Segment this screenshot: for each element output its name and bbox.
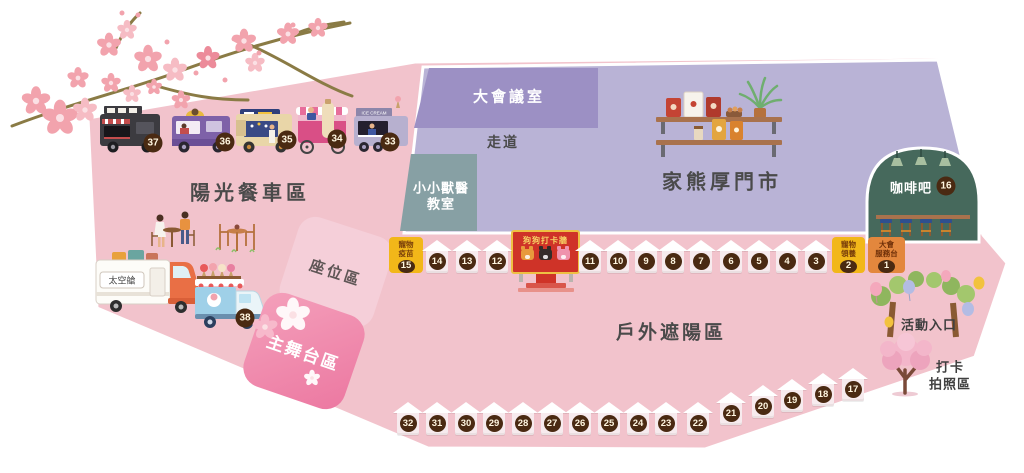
food-truck-33-number: 33 <box>381 133 400 152</box>
tent-23: 23 <box>651 402 681 435</box>
tent-roof-icon <box>683 402 713 413</box>
tent-body: 6 <box>720 250 742 273</box>
meeting-room-label: 大會議室 <box>473 86 545 107</box>
booth-label: 寵物 <box>399 240 414 249</box>
tent-3: 3 <box>801 240 831 273</box>
dog-face-icon <box>557 249 570 260</box>
tent-number: 8 <box>665 253 682 270</box>
photo-zone-label-line2: 拍照區 <box>929 374 971 393</box>
tent-number: 27 <box>544 415 561 432</box>
tent-roof-icon <box>716 240 746 251</box>
tent-31: 31 <box>422 402 452 435</box>
tent-26: 26 <box>565 402 595 435</box>
tent-roof-icon <box>744 240 774 251</box>
walkway-label: 走道 <box>487 132 519 152</box>
tent-roof-icon <box>716 392 746 403</box>
tent-number: 31 <box>429 415 446 432</box>
tent-roof-icon <box>422 240 452 251</box>
tent-29: 29 <box>479 402 509 435</box>
tent-body: 25 <box>598 412 620 435</box>
tent-roof-icon <box>838 368 868 379</box>
seating-area-label: 座位區 <box>307 254 365 291</box>
tent-number: 20 <box>755 398 772 415</box>
tent-body: 26 <box>569 412 591 435</box>
tent-13: 13 <box>452 240 482 273</box>
tent-roof-icon <box>603 240 633 251</box>
tent-number: 26 <box>572 415 589 432</box>
tent-number: 11 <box>582 253 599 270</box>
tent-number: 6 <box>723 253 740 270</box>
tent-roof-icon <box>777 379 807 390</box>
tent-body: 32 <box>397 412 419 435</box>
tent-body: 24 <box>627 412 649 435</box>
tent-number: 7 <box>693 253 710 270</box>
tent-11: 11 <box>575 240 605 273</box>
tent-4: 4 <box>772 240 802 273</box>
space-capsule-label: 太空艙 <box>108 274 135 287</box>
tent-22: 22 <box>683 402 713 435</box>
tent-27: 27 <box>537 402 567 435</box>
tent-roof-icon <box>658 240 688 251</box>
tent-21: 21 <box>716 392 746 425</box>
tent-number: 9 <box>638 253 655 270</box>
food-truck-zone-label: 陽光餐車區 <box>190 177 310 206</box>
tent-body: 7 <box>690 250 712 273</box>
tent-roof-icon <box>537 402 567 413</box>
outdoor-shade-label: 戶外遮陽區 <box>616 318 726 345</box>
booth-label: 服務台 <box>875 249 898 258</box>
main-stage-label: 主舞台區 <box>264 327 344 375</box>
tent-20: 20 <box>748 385 778 418</box>
tent-roof-icon <box>393 402 423 413</box>
tent-number: 30 <box>458 415 475 432</box>
booth-label: 大會 <box>879 240 894 249</box>
food-truck-34-number: 34 <box>328 130 347 149</box>
tent-roof-icon <box>801 240 831 251</box>
tent-number: 24 <box>630 415 647 432</box>
tent-28: 28 <box>508 402 538 435</box>
booth-label: 寵物 <box>841 240 856 249</box>
coffee-bar-label: 咖啡吧 <box>890 178 932 197</box>
tent-roof-icon <box>451 402 481 413</box>
tent-17: 17 <box>838 368 868 401</box>
tent-body: 4 <box>776 250 798 273</box>
tent-roof-icon <box>508 402 538 413</box>
tent-body: 14 <box>426 250 448 273</box>
tent-roof-icon <box>748 385 778 396</box>
tent-number: 4 <box>779 253 796 270</box>
vet-classroom-label-line2: 教室 <box>427 194 455 213</box>
tent-number: 32 <box>400 415 417 432</box>
tent-number: 23 <box>658 415 675 432</box>
dog-photo-wall: 狗狗打卡牆 <box>511 230 580 274</box>
tent-body: 19 <box>781 389 803 412</box>
booth-number: 2 <box>840 260 857 273</box>
tent-number: 29 <box>486 415 503 432</box>
tent-roof-icon <box>594 402 624 413</box>
tent-body: 3 <box>805 250 827 273</box>
tent-body: 11 <box>579 250 601 273</box>
tent-roof-icon <box>482 240 512 251</box>
booth-pet-adoption: 寵物 領養 2 <box>832 237 865 273</box>
booth-service-desk: 大會 服務台 1 <box>868 237 905 273</box>
tent-18: 18 <box>808 373 838 406</box>
tent-7: 7 <box>686 240 716 273</box>
tent-number: 12 <box>489 253 506 270</box>
tent-body: 18 <box>812 383 834 406</box>
tent-roof-icon <box>479 402 509 413</box>
tent-body: 20 <box>752 395 774 418</box>
tent-body: 10 <box>607 250 629 273</box>
tent-10: 10 <box>603 240 633 273</box>
tent-body: 23 <box>655 412 677 435</box>
booth-number: 1 <box>878 260 895 273</box>
tent-roof-icon <box>772 240 802 251</box>
tent-roof-icon <box>452 240 482 251</box>
store-label: 家熊厚門市 <box>662 166 782 195</box>
tent-roof-icon <box>808 373 838 384</box>
tent-number: 3 <box>808 253 825 270</box>
tent-body: 12 <box>486 250 508 273</box>
booth-pet-vaccine: 寵物 疫苗 15 <box>389 237 423 273</box>
food-truck-35-number: 35 <box>278 131 297 150</box>
tent-number: 13 <box>459 253 476 270</box>
booth-number: 15 <box>398 260 415 273</box>
coffee-bar-number: 16 <box>937 177 956 196</box>
tent-5: 5 <box>744 240 774 273</box>
tent-body: 31 <box>426 412 448 435</box>
tent-roof-icon <box>631 240 661 251</box>
tent-6: 6 <box>716 240 746 273</box>
tent-roof-icon <box>422 402 452 413</box>
tent-body: 5 <box>748 250 770 273</box>
booth-label: 疫苗 <box>399 249 414 258</box>
tent-number: 18 <box>815 386 832 403</box>
entrance-label: 活動入口 <box>901 315 957 334</box>
tent-number: 25 <box>601 415 618 432</box>
tent-roof-icon <box>575 240 605 251</box>
tent-body: 8 <box>662 250 684 273</box>
tent-body: 28 <box>512 412 534 435</box>
tent-number: 19 <box>784 392 801 409</box>
tent-9: 9 <box>631 240 661 273</box>
tent-roof-icon <box>565 402 595 413</box>
tent-8: 8 <box>658 240 688 273</box>
tent-number: 28 <box>515 415 532 432</box>
dog-face-icon <box>521 249 534 260</box>
tent-number: 10 <box>610 253 627 270</box>
tent-number: 22 <box>690 415 707 432</box>
tent-roof-icon <box>686 240 716 251</box>
tent-body: 13 <box>456 250 478 273</box>
food-truck-36-number: 36 <box>216 133 235 152</box>
tent-body: 22 <box>687 412 709 435</box>
tent-roof-icon <box>623 402 653 413</box>
tent-number: 5 <box>751 253 768 270</box>
dog-face-icon <box>539 249 552 260</box>
booth-label: 領養 <box>841 249 856 258</box>
ice-cream-truck-38-number: 38 <box>236 309 255 328</box>
tent-30: 30 <box>451 402 481 435</box>
dog-photo-wall-title: 狗狗打卡牆 <box>523 235 568 246</box>
tent-12: 12 <box>482 240 512 273</box>
tent-body: 27 <box>541 412 563 435</box>
tent-body: 17 <box>842 378 864 401</box>
tent-body: 9 <box>635 250 657 273</box>
tent-19: 19 <box>777 379 807 412</box>
tent-32: 32 <box>393 402 423 435</box>
tent-24: 24 <box>623 402 653 435</box>
tent-25: 25 <box>594 402 624 435</box>
ice-cream-sign-text: ICE CREAM <box>361 111 386 116</box>
tent-number: 17 <box>845 381 862 398</box>
tent-body: 30 <box>455 412 477 435</box>
tent-number: 21 <box>723 405 740 422</box>
tent-roof-icon <box>651 402 681 413</box>
tent-14: 14 <box>422 240 452 273</box>
event-map: ICE CREAM <box>0 0 1024 473</box>
food-truck-37-number: 37 <box>144 134 163 153</box>
tent-number: 14 <box>429 253 446 270</box>
tent-body: 29 <box>483 412 505 435</box>
tent-body: 21 <box>720 402 742 425</box>
